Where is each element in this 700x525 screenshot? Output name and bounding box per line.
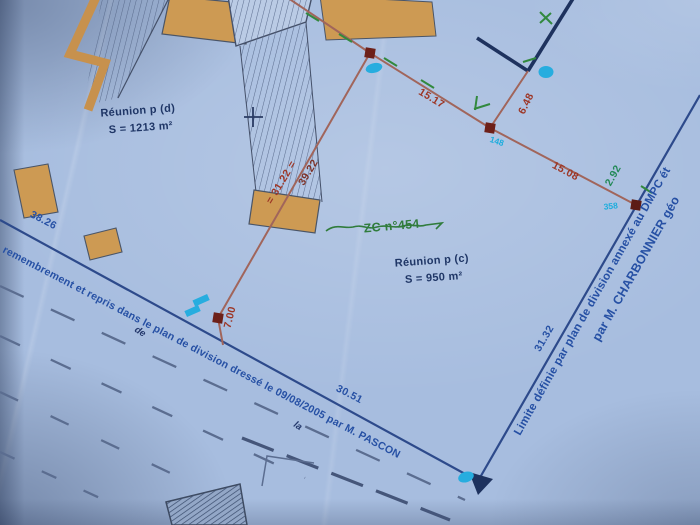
measurement-6-48: 6.48 (516, 91, 536, 116)
survey-point-square (364, 47, 375, 58)
cyan-point-marker (539, 66, 554, 78)
hatched-wedge-bottom-hatch (166, 484, 247, 525)
road-dash-line (0, 392, 185, 480)
parcel-c-area: S = 950 m² (405, 270, 463, 286)
cyan-point-marker (365, 61, 384, 74)
measurement-15-08: 15.08 (550, 159, 581, 183)
labels-layer: Réunion p (d) S = 1213 m² ZC n°454 Réuni… (1, 86, 683, 461)
parcel-d-label: Réunion p (d) (100, 102, 175, 119)
orange-building-5 (84, 228, 122, 260)
street-word-la: la (291, 419, 304, 433)
point-number-148: 148 (489, 134, 506, 148)
parcel-d-area: S = 1213 m² (108, 120, 173, 136)
boundary-line-right (478, 95, 700, 481)
measurement-15-17: 15.17 (416, 86, 446, 111)
cadastral-plan-photo: Réunion p (d) S = 1213 m² ZC n°454 Réuni… (0, 0, 700, 525)
navy-wall-segment-2 (528, 0, 574, 71)
measurement-30-51: 30.51 (334, 383, 365, 407)
navy-wall-segment-1 (477, 38, 528, 71)
measurement-2-92: 2.92 (603, 163, 624, 188)
right-boundary-note-1: Limite définie par plan de division anne… (512, 165, 673, 437)
orange-building-3 (320, 0, 436, 40)
cyan-point-marker (184, 305, 200, 317)
road-dash-line (0, 452, 115, 505)
parcel-number-label: ZC n°454 (363, 217, 420, 236)
parcel-c-label: Réunion p (c) (394, 252, 469, 269)
cadastral-plan-svg: Réunion p (d) S = 1213 m² ZC n°454 Réuni… (0, 0, 700, 525)
point-number-358: 358 (603, 200, 618, 211)
left-boundary-note: remembrement et repris dans le plan de d… (1, 244, 403, 461)
cyan-point-marker (192, 294, 209, 306)
survey-point-square (484, 122, 495, 133)
